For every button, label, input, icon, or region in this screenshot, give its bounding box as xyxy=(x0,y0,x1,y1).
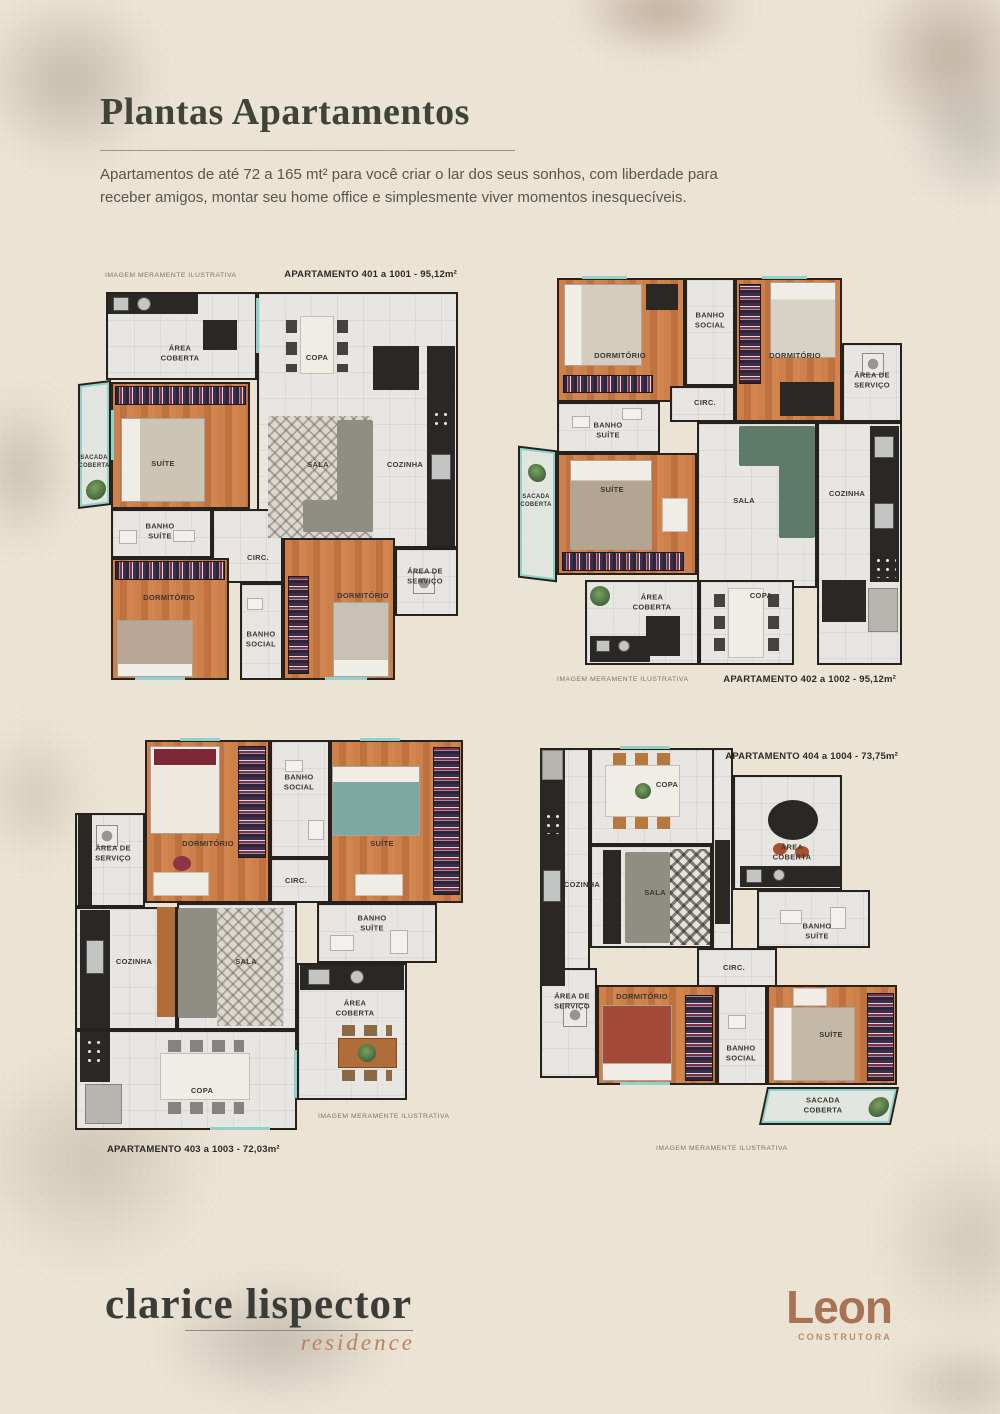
plan-403-disclaimer: IMAGEM MERAMENTE ILUSTRATIVA xyxy=(318,1113,450,1120)
sofa xyxy=(303,500,373,532)
floorplan-404: APARTAMENTO 404 a 1004 - 73,75m² xyxy=(530,735,920,1180)
sofa xyxy=(779,426,815,538)
plant xyxy=(358,1044,376,1062)
stove xyxy=(83,1036,105,1066)
chairs xyxy=(286,320,297,372)
label-area-coberta: ÁREA COBERTA xyxy=(156,343,204,363)
label-copa: COPA xyxy=(191,1086,213,1096)
window xyxy=(210,1127,270,1130)
plan-402-caption: APARTAMENTO 402 a 1002 - 95,12m² xyxy=(723,674,896,685)
label-area-coberta: ÁREA COBERTA xyxy=(767,842,817,862)
label-copa: COPA xyxy=(656,780,678,790)
label-dormitorio: DORMITÓRIO xyxy=(182,839,234,849)
wardrobe xyxy=(288,576,309,674)
floorplan-402: DORMITÓRIO BANHO SOCIAL DORMITÓRIO ÁREA … xyxy=(512,258,910,692)
plant xyxy=(635,783,651,799)
label-banho-social: BANHO SOCIAL xyxy=(279,772,319,792)
label-sacada: SACADA COBERTA xyxy=(797,1095,849,1115)
window xyxy=(180,738,220,741)
window xyxy=(360,738,400,741)
plan-404-disclaimer: IMAGEM MERAMENTE ILUSTRATIVA xyxy=(656,1145,788,1152)
bed xyxy=(332,766,420,836)
desk xyxy=(662,498,688,532)
wardrobe xyxy=(739,284,761,384)
tv-bench xyxy=(157,907,175,1017)
stove xyxy=(872,554,896,578)
window xyxy=(620,1082,670,1085)
label-banho-social: BANHO SOCIAL xyxy=(242,629,280,649)
window xyxy=(620,746,670,749)
watercolor-blob xyxy=(540,0,780,75)
basin xyxy=(137,297,151,311)
round-table xyxy=(768,800,818,840)
tv-panel xyxy=(603,850,621,944)
pillows xyxy=(154,749,216,765)
label-circ: CIRC. xyxy=(247,553,269,563)
bath-fixture xyxy=(622,408,642,420)
room-sacada-coberta xyxy=(78,380,111,509)
living-rug xyxy=(670,849,710,945)
bed xyxy=(570,460,652,550)
living-rug xyxy=(217,908,283,1026)
floorplan-401: IMAGEM MERAMENTE ILUSTRATIVA APARTAMENTO… xyxy=(75,258,467,690)
label-copa: COPA xyxy=(306,353,328,363)
kitchen-counter xyxy=(427,346,455,546)
label-sala: SALA xyxy=(733,496,755,506)
chairs xyxy=(342,1070,392,1081)
sofa xyxy=(178,908,217,1018)
label-dormitorio-2: DORMITÓRIO xyxy=(769,351,821,361)
plant xyxy=(86,479,106,501)
label-dormitorio: DORMITÓRIO xyxy=(616,992,668,1002)
label-banho-suite: BANHO SUÍTE xyxy=(588,420,628,440)
sink xyxy=(431,454,451,480)
plant xyxy=(867,1097,891,1117)
chairs xyxy=(714,594,725,652)
window xyxy=(325,677,367,680)
window xyxy=(294,1050,297,1098)
label-banho-social: BANHO SOCIAL xyxy=(691,310,729,330)
plan-403-caption: APARTAMENTO 403 a 1003 - 72,03m² xyxy=(107,1144,280,1155)
window xyxy=(762,276,807,279)
label-copa: COPA xyxy=(750,591,772,601)
chairs xyxy=(168,1102,244,1114)
label-banho-suite: BANHO SUÍTE xyxy=(350,913,394,933)
appliance xyxy=(874,436,894,458)
intro-text: Apartamentos de até 72 a 165 mt² para vo… xyxy=(100,164,760,209)
builder-logo-sub: CONSTRUTORA xyxy=(756,1332,892,1342)
desk xyxy=(646,284,678,310)
chairs xyxy=(337,320,348,372)
bath-fixture xyxy=(728,1015,746,1029)
plan-401-caption: APARTAMENTO 401 a 1001 - 95,12m² xyxy=(284,269,457,280)
room-banho-social xyxy=(270,740,330,858)
label-suite: SUÍTE xyxy=(370,839,394,849)
wardrobe xyxy=(562,552,684,571)
basin xyxy=(350,970,364,984)
bed xyxy=(117,620,193,677)
brochure-page: Plantas Apartamentos Apartamentos de até… xyxy=(0,0,1000,1414)
room-sacada-coberta xyxy=(518,446,557,583)
bed xyxy=(773,1007,855,1081)
label-cozinha: COZINHA xyxy=(116,957,152,967)
chairs xyxy=(342,1025,392,1036)
chairs xyxy=(613,753,673,765)
page-title: Plantas Apartamentos xyxy=(100,90,470,134)
builder-logo-name: Leon xyxy=(756,1284,892,1330)
table xyxy=(646,616,680,656)
kitchen-counter xyxy=(540,750,565,986)
residence-logo-sub: residence xyxy=(295,1330,415,1356)
builder-logo: Leon CONSTRUTORA xyxy=(756,1284,892,1342)
plant xyxy=(590,586,610,606)
label-suite: SUÍTE xyxy=(819,1030,843,1040)
label-dormitorio-2: DORMITÓRIO xyxy=(337,591,389,601)
label-sala: SALA xyxy=(644,888,666,898)
bath-fixture xyxy=(308,820,324,840)
desk xyxy=(203,320,237,350)
room-banho-suite xyxy=(317,903,437,963)
stove xyxy=(542,810,562,834)
bath-fixture xyxy=(285,760,303,772)
bath-fixture xyxy=(119,530,137,544)
label-sala: SALA xyxy=(235,957,257,967)
watercolor-blob xyxy=(830,0,1000,180)
label-dormitorio-1: DORMITÓRIO xyxy=(143,593,195,603)
appliance xyxy=(746,869,762,883)
label-cozinha: COZINHA xyxy=(387,460,423,470)
copa-table xyxy=(300,316,334,374)
chairs xyxy=(168,1040,244,1052)
wardrobe xyxy=(685,995,713,1081)
fridge xyxy=(85,1084,122,1124)
room-banho-social xyxy=(717,985,767,1085)
chair xyxy=(173,856,191,871)
chairs xyxy=(768,594,779,652)
plan-401-disclaimer: IMAGEM MERAMENTE ILUSTRATIVA xyxy=(105,272,237,279)
bed xyxy=(333,602,389,677)
label-banho-suite: BANHO SUÍTE xyxy=(139,521,181,541)
desk xyxy=(780,382,834,416)
label-area-servico: ÁREA DE SERVIÇO xyxy=(549,991,595,1011)
cabinet xyxy=(868,588,898,632)
label-cozinha: COZINHA xyxy=(829,489,865,499)
room-banho-social xyxy=(685,278,735,386)
label-area-coberta: ÁREA COBERTA xyxy=(628,592,676,612)
window xyxy=(135,677,185,680)
label-area-coberta: ÁREA COBERTA xyxy=(330,998,380,1018)
fridge xyxy=(542,750,563,780)
desk xyxy=(153,872,209,896)
sink xyxy=(86,940,104,974)
label-dormitorio-1: DORMITÓRIO xyxy=(594,351,646,361)
window xyxy=(256,298,259,353)
chairs xyxy=(613,817,673,829)
cabinet xyxy=(715,840,730,924)
label-suite: SUÍTE xyxy=(600,485,624,495)
window xyxy=(111,410,114,460)
sink xyxy=(874,503,894,529)
sink xyxy=(596,640,610,652)
watercolor-blob xyxy=(880,40,1000,230)
plan-402-disclaimer: IMAGEM MERAMENTE ILUSTRATIVA xyxy=(557,676,689,683)
wardrobe xyxy=(115,386,246,405)
sink xyxy=(308,969,330,985)
label-suite: SUÍTE xyxy=(151,459,175,469)
floorplan-403: ÁREA DE SERVIÇO DORMITÓRIO BANHO SOCIAL … xyxy=(60,720,490,1170)
bath-fixture xyxy=(247,598,263,610)
label-banho-social: BANHO SOCIAL xyxy=(722,1043,760,1063)
table xyxy=(822,580,866,622)
bath-fixture xyxy=(330,935,354,951)
stove xyxy=(430,408,452,426)
bed xyxy=(602,1005,672,1081)
label-sacada: SACADA COBERTA xyxy=(78,455,110,471)
basin xyxy=(618,640,630,652)
plant xyxy=(528,463,546,483)
desk xyxy=(793,988,827,1006)
label-circ: CIRC. xyxy=(694,398,716,408)
wardrobe xyxy=(867,993,894,1081)
bath-fixture xyxy=(390,930,408,954)
label-sacada: SACADA COBERTA xyxy=(520,494,552,510)
bed xyxy=(770,282,836,358)
label-banho-suite: BANHO SUÍTE xyxy=(795,921,839,941)
wardrobe xyxy=(238,746,266,858)
window xyxy=(582,276,627,279)
kitchen-island xyxy=(373,346,419,390)
desk xyxy=(355,874,403,896)
residence-logo: clarice lispector xyxy=(105,1280,412,1329)
wardrobe xyxy=(433,747,460,895)
label-circ: CIRC. xyxy=(285,876,307,886)
wardrobe xyxy=(115,561,225,580)
sink xyxy=(543,870,561,902)
label-sala: SALA xyxy=(307,460,329,470)
title-divider xyxy=(100,150,515,151)
wardrobe xyxy=(563,375,653,393)
label-area-servico: ÁREA DE SERVIÇO xyxy=(850,370,894,390)
basin xyxy=(773,869,785,881)
plan-404-caption: APARTAMENTO 404 a 1004 - 73,75m² xyxy=(725,751,898,762)
label-area-servico: ÁREA DE SERVIÇO xyxy=(403,566,447,586)
appliance xyxy=(113,297,129,311)
label-cozinha: COZINHA xyxy=(564,880,600,890)
label-area-servico: ÁREA DE SERVIÇO xyxy=(90,843,136,863)
label-circ: CIRC. xyxy=(723,963,745,973)
